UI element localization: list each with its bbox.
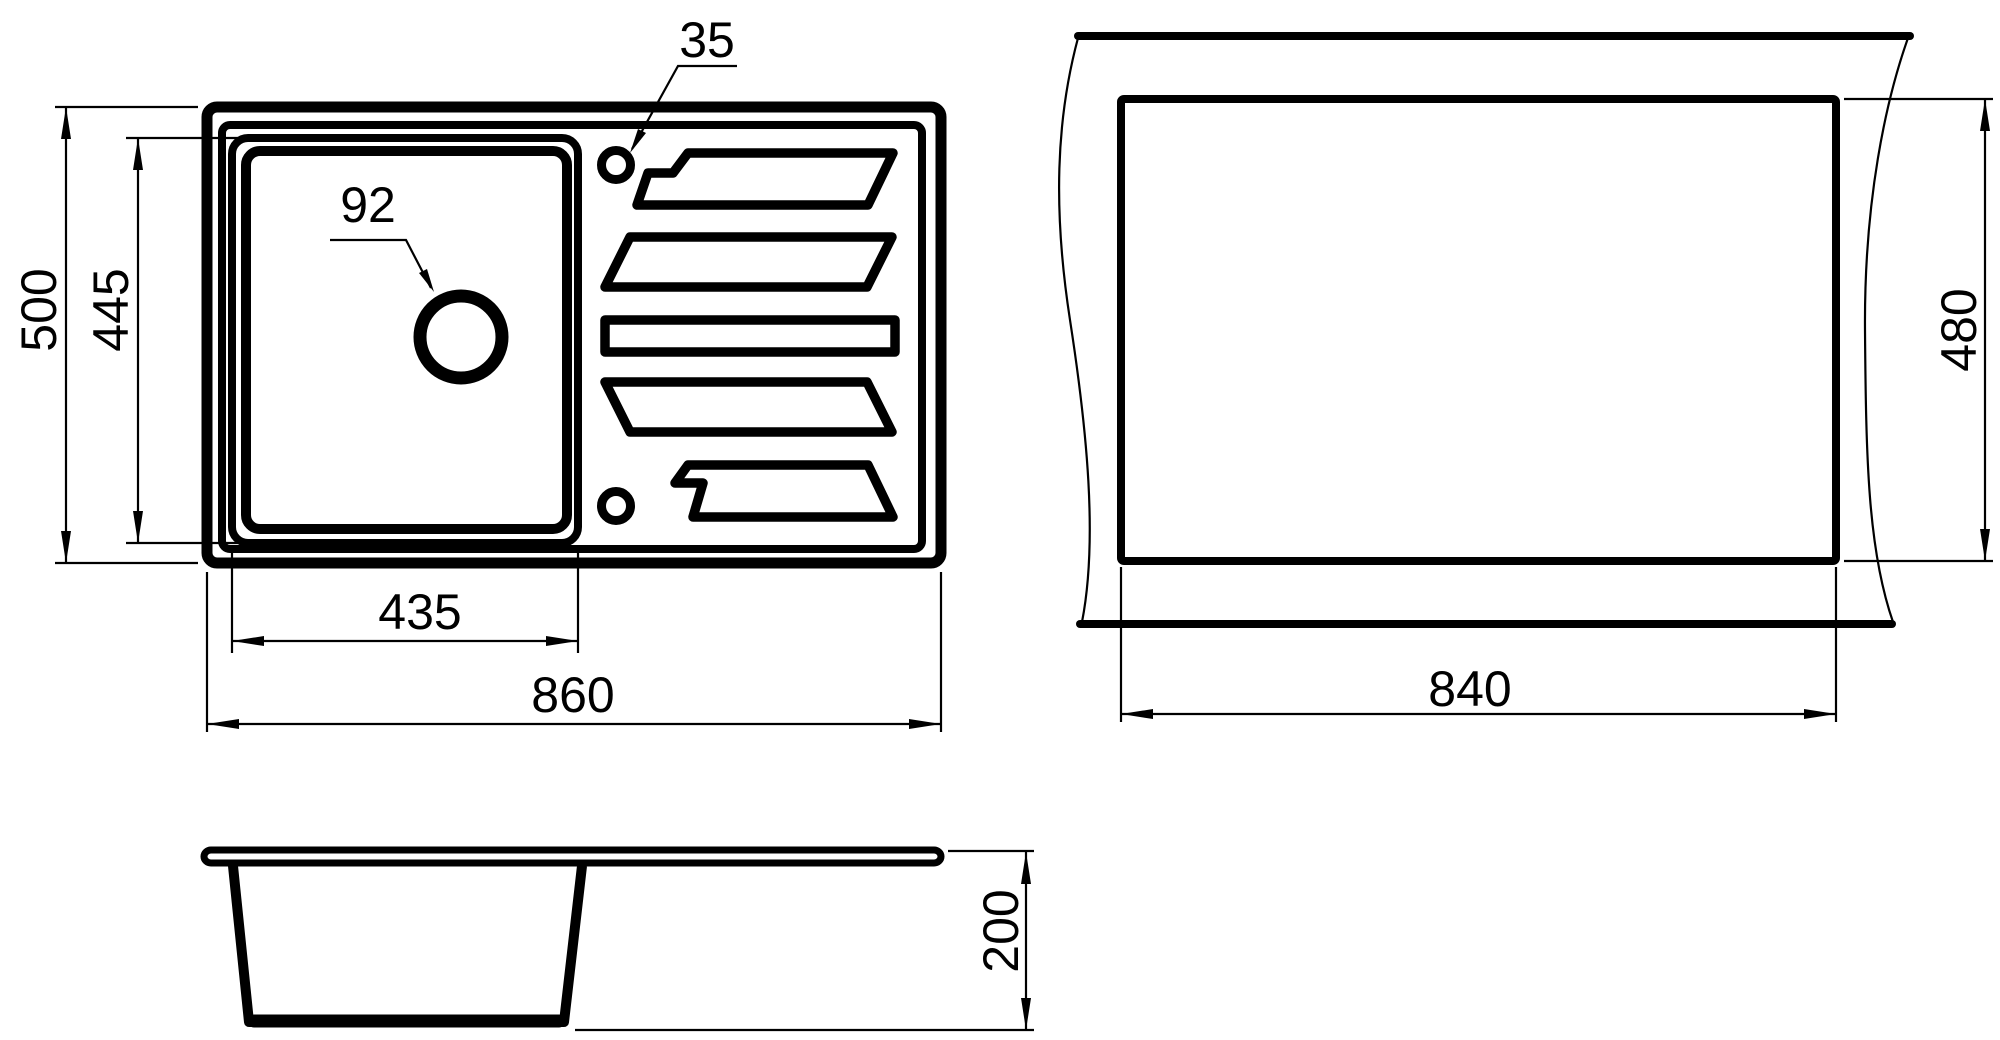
bowl-outer-rim [232, 138, 578, 543]
dim-arrow-icon [207, 719, 239, 729]
dim-arrow-icon [133, 511, 143, 543]
dim-arrow-icon [1021, 852, 1031, 884]
dim-arrow-icon [133, 138, 143, 170]
drainboard-grooves [605, 153, 895, 517]
sink-technical-drawing: 92 35 500 445 [0, 0, 2000, 1040]
leader-arrow-icon [419, 269, 434, 292]
groove-5 [675, 465, 893, 517]
tap-hole-label: 35 [679, 12, 735, 68]
bowl-width-label: 435 [378, 584, 461, 640]
cutout-height-label: 480 [1931, 288, 1987, 371]
dim-arrow-icon [1980, 99, 1990, 131]
dim-arrow-icon [61, 107, 71, 139]
dim-arrow-icon [61, 531, 71, 563]
drain-hole [420, 296, 502, 378]
dim-arrow-icon [909, 719, 941, 729]
dim-arrow-icon [1804, 709, 1836, 719]
outer-width-label: 860 [531, 667, 614, 723]
break-line-left [1059, 38, 1090, 622]
groove-4 [605, 382, 892, 432]
side-view: 200 [204, 850, 1034, 1030]
leader-tap-35: 35 [630, 12, 737, 153]
tap-hole-top [602, 151, 631, 180]
drain-hole-label: 92 [340, 177, 396, 233]
dim-outer-width: 860 [207, 572, 941, 732]
dim-bowl-height: 445 [83, 138, 240, 543]
dim-arrow-icon [1121, 709, 1153, 719]
dim-arrow-icon [1021, 998, 1031, 1030]
bowl-inner-edge [246, 151, 567, 529]
groove-2 [605, 237, 892, 287]
leader-drain-92: 92 [330, 177, 434, 292]
dim-arrow-icon [1980, 529, 1990, 561]
cutout-width-label: 840 [1428, 661, 1511, 717]
depth-label: 200 [973, 889, 1029, 972]
groove-3 [605, 320, 895, 352]
dim-arrow-icon [546, 636, 578, 646]
flange-profile [204, 850, 941, 863]
dim-cutout-width: 840 [1121, 567, 1836, 722]
outer-height-label: 500 [11, 268, 67, 351]
cutout-view: 480 840 [1059, 36, 1993, 722]
bowl-profile [233, 866, 582, 1022]
cutout-rectangle [1121, 99, 1836, 561]
bowl-height-label: 445 [83, 268, 139, 351]
groove-1 [637, 153, 893, 205]
dim-cutout-height: 480 [1844, 99, 1993, 561]
plan-view: 92 35 500 445 [11, 12, 941, 732]
dim-arrow-icon [232, 636, 264, 646]
dim-depth: 200 [575, 851, 1034, 1030]
leader-arrow-icon [630, 129, 646, 153]
tap-hole-bottom [602, 492, 631, 521]
break-line-right [1865, 38, 1908, 622]
